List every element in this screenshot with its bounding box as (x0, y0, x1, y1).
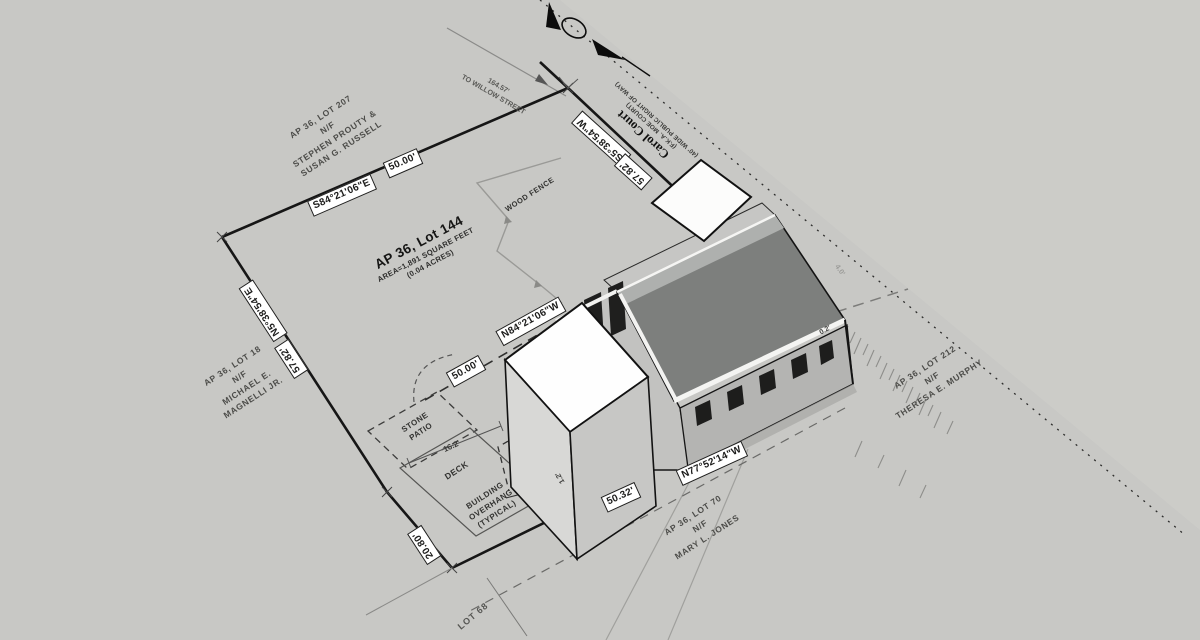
house-model (505, 160, 857, 559)
fence-tick (504, 216, 512, 224)
boundary-extension-line (366, 568, 452, 615)
site-plan-linework (0, 0, 1200, 640)
wall-dashed-line (836, 289, 908, 312)
sketchup-3d-viewport[interactable]: S84°21'06"E 50.00' S5°38'54"W 57.82' N5°… (0, 0, 1200, 640)
dimension-arrowhead (535, 74, 548, 85)
lot68-divider-line (487, 578, 527, 636)
